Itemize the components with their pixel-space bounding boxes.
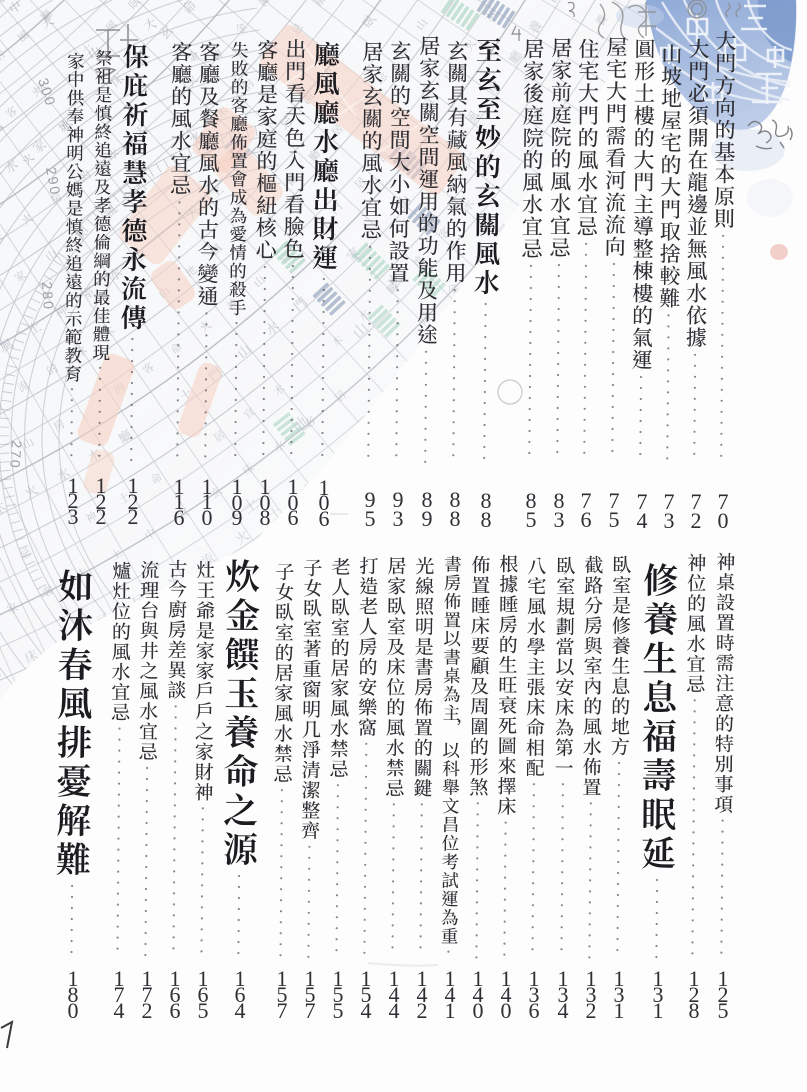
svg-text:7: 7 bbox=[718, 489, 729, 514]
svg-text:9: 9 bbox=[393, 487, 404, 512]
svg-text:1: 1 bbox=[142, 966, 153, 991]
svg-text:1: 1 bbox=[277, 966, 288, 991]
svg-text:8: 8 bbox=[422, 487, 433, 512]
svg-text:1: 1 bbox=[235, 966, 246, 991]
svg-text:8: 8 bbox=[481, 488, 492, 513]
svg-text:8: 8 bbox=[450, 487, 461, 512]
svg-text:1: 1 bbox=[445, 966, 456, 991]
svg-text:7: 7 bbox=[609, 488, 620, 513]
svg-text:1: 1 bbox=[361, 966, 372, 991]
svg-text:1: 1 bbox=[232, 474, 243, 499]
svg-text:1: 1 bbox=[68, 473, 79, 498]
svg-text:1: 1 bbox=[260, 474, 271, 499]
svg-text:270: 270 bbox=[7, 440, 25, 470]
svg-text:1: 1 bbox=[319, 475, 330, 500]
svg-text:7: 7 bbox=[691, 489, 702, 514]
svg-text:1: 1 bbox=[718, 966, 729, 991]
svg-text:1: 1 bbox=[389, 966, 400, 991]
svg-text:1: 1 bbox=[529, 966, 540, 991]
svg-text:1: 1 bbox=[114, 966, 125, 991]
svg-text:1: 1 bbox=[501, 966, 512, 991]
svg-text:1: 1 bbox=[288, 474, 299, 499]
svg-text:1: 1 bbox=[558, 966, 569, 991]
svg-text:1: 1 bbox=[68, 966, 79, 991]
svg-text:7: 7 bbox=[581, 488, 592, 513]
svg-text:8: 8 bbox=[526, 488, 537, 513]
svg-text:1: 1 bbox=[170, 966, 181, 991]
svg-text:1: 1 bbox=[586, 966, 597, 991]
svg-text:9: 9 bbox=[365, 487, 376, 512]
svg-text:1: 1 bbox=[202, 474, 213, 499]
svg-text:1: 1 bbox=[614, 966, 625, 991]
svg-text:7: 7 bbox=[637, 489, 648, 514]
svg-text:8: 8 bbox=[554, 488, 565, 513]
svg-text:1: 1 bbox=[689, 966, 700, 991]
svg-text:1: 1 bbox=[473, 966, 484, 991]
svg-text:1: 1 bbox=[198, 966, 209, 991]
svg-text:1: 1 bbox=[128, 473, 139, 498]
svg-text:1: 1 bbox=[96, 473, 107, 498]
svg-text:1: 1 bbox=[333, 966, 344, 991]
svg-text:1: 1 bbox=[653, 966, 664, 991]
svg-text:1: 1 bbox=[174, 474, 185, 499]
svg-text:280: 280 bbox=[39, 281, 57, 311]
svg-text:1: 1 bbox=[305, 966, 316, 991]
svg-text:1: 1 bbox=[417, 966, 428, 991]
svg-text:7: 7 bbox=[664, 489, 675, 514]
